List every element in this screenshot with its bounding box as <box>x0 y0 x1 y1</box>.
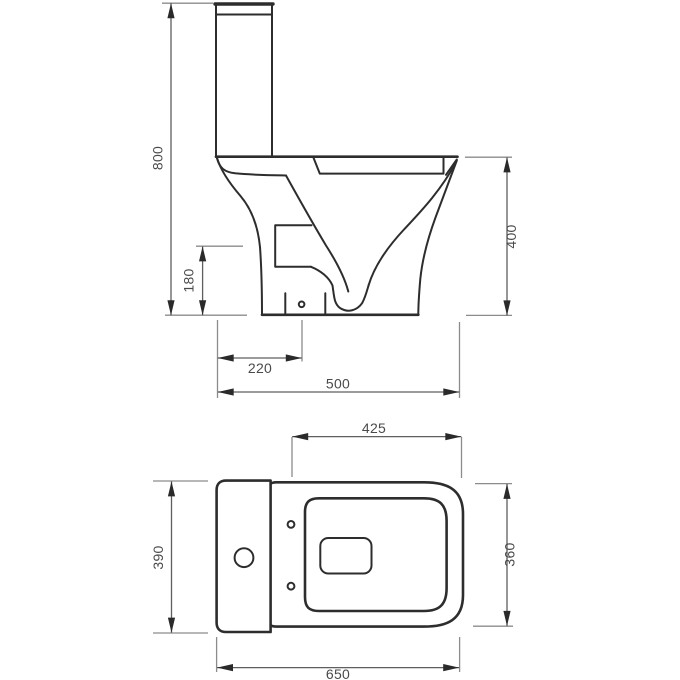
dimension-overall-depth: 650 <box>217 637 460 680</box>
dimension-cistern-width: 390 <box>150 481 208 633</box>
arrowhead-down-icon <box>168 618 175 633</box>
arrowhead-up-icon <box>503 157 510 172</box>
dimension-trap-height: 180 <box>181 246 244 315</box>
toilet-dimension-drawing: 800 180 400 220 <box>0 0 680 680</box>
arrowhead-right-icon <box>443 664 459 671</box>
dimension-label: 800 <box>150 146 166 170</box>
dimension-label: 650 <box>326 666 350 680</box>
arrowhead-up-icon <box>199 246 206 261</box>
rear-outer-edge <box>418 161 457 315</box>
outlet-dot <box>299 302 305 308</box>
under-seat-curve <box>217 158 286 176</box>
fixing-recess <box>275 225 311 267</box>
arrowhead-down-icon <box>503 300 510 315</box>
seat-band <box>314 158 457 175</box>
dimension-label: 400 <box>503 224 519 248</box>
cistern-side-outline <box>216 4 272 156</box>
dimension-label: 220 <box>248 360 272 376</box>
pan-plan-outline <box>268 482 463 626</box>
dimension-overall-height: 800 <box>150 3 248 315</box>
arrowhead-up-icon <box>168 481 175 496</box>
dimension-label: 360 <box>502 542 518 566</box>
side-view <box>215 4 458 315</box>
arrowhead-left-icon <box>217 664 233 671</box>
dimension-label: 390 <box>150 545 166 569</box>
dimension-pan-width: 360 <box>473 484 518 627</box>
pedestal-front-edge <box>217 158 262 315</box>
arrowhead-left-icon <box>218 388 234 395</box>
cistern-plan-outline <box>217 481 271 632</box>
arrowhead-left-icon <box>292 433 308 440</box>
dimension-outlet-setout: 220 <box>218 320 303 398</box>
dimension-label: 425 <box>362 420 386 436</box>
dimension-label: 180 <box>181 268 197 292</box>
bowl-inner-curve <box>286 176 348 292</box>
arrowhead-right-icon <box>445 433 461 440</box>
arrowhead-down-icon <box>503 611 510 626</box>
dimension-rim-height: 400 <box>465 157 519 315</box>
dimension-seat-length: 425 <box>292 420 462 478</box>
plan-view <box>217 481 463 632</box>
trap-sump-curve <box>311 267 369 311</box>
arrowhead-down-icon <box>199 300 206 315</box>
arrowhead-right-icon <box>443 388 459 395</box>
arrowhead-down-icon <box>167 300 174 315</box>
arrowhead-up-icon <box>503 484 510 499</box>
rear-inner-sweep <box>369 162 457 285</box>
dimension-label: 500 <box>326 376 350 392</box>
arrowhead-right-icon <box>286 354 302 361</box>
arrowhead-left-icon <box>218 354 234 361</box>
side-dimensions: 800 180 400 220 <box>150 3 520 398</box>
arrowhead-up-icon <box>167 3 174 18</box>
